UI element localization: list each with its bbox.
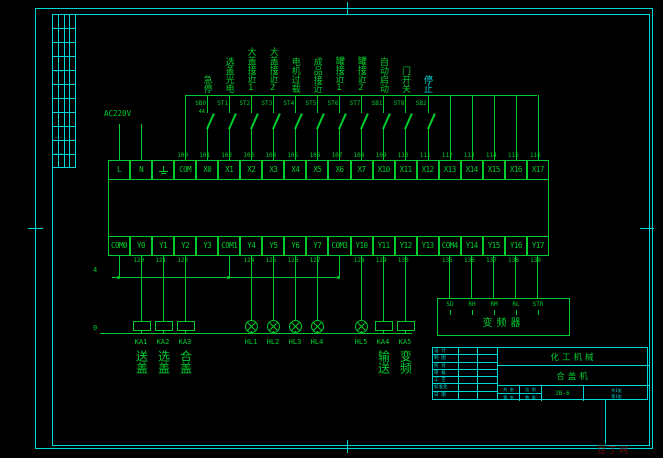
title-block-row: 审 核 <box>433 370 497 377</box>
junction-dot <box>337 276 340 279</box>
vfd-terminal: SD <box>440 302 460 308</box>
wire <box>450 95 451 113</box>
relay-ka1: KA1 送盖 <box>130 256 152 406</box>
title-block-row: 工 艺 <box>433 377 497 384</box>
contact-symbol <box>405 113 413 129</box>
wire <box>339 95 340 113</box>
title-block-row: 日 期 <box>433 392 497 399</box>
device-caption: 变频 <box>399 350 412 374</box>
input-function-label: 自动启动 <box>378 57 388 93</box>
wire <box>163 256 164 321</box>
frame-divider <box>605 400 606 444</box>
title-block-cell <box>459 370 478 376</box>
input-column: 大盖接近2 ST3 104 <box>262 22 284 160</box>
wire <box>538 95 539 113</box>
wire-number: 106 <box>309 153 320 159</box>
footer-text-block: 共1张 第1张 <box>584 386 649 401</box>
terminal: X10 <box>373 160 395 180</box>
device-caption: 合盖 <box>179 350 192 374</box>
wire <box>273 95 274 113</box>
switch-label: ST6 <box>328 101 339 107</box>
vfd-terminal-tick <box>516 310 517 315</box>
relay-coil-icon <box>155 321 173 331</box>
terminal-label: Y14 <box>466 242 478 250</box>
title-block-row-label: 校 对 <box>433 363 459 369</box>
lamp-hl3: HL3 <box>284 256 306 406</box>
device-id: KA5 <box>394 338 416 346</box>
wire <box>339 256 340 277</box>
wire <box>185 113 186 129</box>
relay-ka2: KA2 选盖 <box>152 256 174 406</box>
wire <box>141 256 142 321</box>
wire <box>295 95 296 113</box>
wire <box>119 256 120 277</box>
title-block-cell <box>478 384 497 390</box>
terminal <box>152 160 174 180</box>
wire <box>472 113 473 129</box>
input-function-label: 大盖接近1 <box>246 47 256 93</box>
wire-number: 139 <box>530 257 541 264</box>
terminal: X6 <box>328 160 350 180</box>
switch-label: ST3 <box>261 101 272 107</box>
zero-bus <box>100 333 412 334</box>
terminal: L <box>108 160 130 180</box>
switch-label: ST1 <box>217 101 228 107</box>
terminal: Y0 120 <box>130 236 152 256</box>
input-column: 选盖光电 ST1 102 <box>218 22 240 160</box>
contact-symbol <box>360 113 368 129</box>
wire-number: 104 <box>265 153 276 159</box>
terminal: X13 <box>439 160 461 180</box>
drawing-name: 合盖机 <box>498 366 649 386</box>
footer-line: 第1张 <box>584 394 649 400</box>
document-number: 2B-6 <box>542 386 584 401</box>
terminal-label: X13 <box>444 166 456 174</box>
wire <box>472 95 473 113</box>
title-block-row-label: 工 艺 <box>433 377 459 383</box>
input-function-label: 成品接近 <box>312 57 322 93</box>
title-block-cell <box>478 363 497 369</box>
contact-symbol <box>338 113 346 129</box>
input-column: 成品接近 ST5 106 <box>306 22 328 160</box>
wire-number: 103 <box>243 153 254 159</box>
terminal-label: COM0 <box>111 242 127 250</box>
wire-l <box>119 124 120 160</box>
wire <box>538 113 539 129</box>
title-block-row: 校 对 <box>433 363 497 370</box>
terminal-label: X2 <box>247 166 255 174</box>
title-block-row: 制 图 <box>433 355 497 362</box>
wire <box>229 95 230 113</box>
vfd-terminal: RM <box>484 302 504 308</box>
sheet-count-label: 共 张 <box>498 386 519 394</box>
input-function-label: 大盖接近2 <box>268 47 278 93</box>
strip-text-mark: — — <box>55 135 62 140</box>
center-mark-right <box>640 228 654 229</box>
wire <box>494 95 495 113</box>
device-id: HL1 <box>240 338 262 346</box>
terminal: Y11 129 <box>373 236 395 256</box>
qty-label: 数 量 <box>520 394 541 401</box>
wire <box>493 256 494 298</box>
device-id: HL4 <box>306 338 328 346</box>
relay-ka5: KA5 变频 <box>394 256 416 406</box>
terminal-label: Y15 <box>488 242 500 250</box>
input-column: 急停 SB0 4A 101 <box>196 22 218 160</box>
vfd-terminal-tick <box>538 310 539 315</box>
terminal-label: Y10 <box>356 242 368 250</box>
relay-coil-icon <box>177 321 195 331</box>
terminal: X16 <box>505 160 527 180</box>
terminal: Y3 <box>196 236 218 256</box>
sheet-count-label: 第 张 <box>498 394 519 401</box>
switch-label: ST4 <box>283 101 294 107</box>
terminal: COM1 <box>218 236 240 256</box>
center-mark-left <box>28 228 43 229</box>
terminal-label: COM3 <box>331 242 347 250</box>
terminal: Y14 136 <box>461 236 483 256</box>
title-block-cell <box>459 392 478 399</box>
input-column: 116 <box>527 22 549 160</box>
device-caption: 输送 <box>377 350 390 374</box>
title-block-cell <box>459 384 478 390</box>
input-column: 停止 SB2 111 <box>417 22 439 160</box>
terminal: Y15 137 <box>483 236 505 256</box>
junction-dot <box>117 276 120 279</box>
switch-label: ST5 <box>305 101 316 107</box>
title-block-row-label: 标准化 <box>433 384 459 390</box>
wire <box>361 95 362 113</box>
contact-symbol <box>427 113 435 129</box>
title-block-cell <box>478 355 497 361</box>
terminal-label: X4 <box>291 166 299 174</box>
terminal: X15 <box>483 160 505 180</box>
lamp-hl2: HL2 <box>262 256 284 406</box>
ac-supply-label: AC220V <box>104 110 131 117</box>
terminal-label: X14 <box>466 166 478 174</box>
wire-number: 137 <box>486 257 497 264</box>
wire <box>207 95 208 113</box>
device-id: HL5 <box>350 338 372 346</box>
terminal: N <box>130 160 152 180</box>
terminal: X4 <box>284 160 306 180</box>
input-function-label: 罐接近2 <box>356 56 366 93</box>
switch-label: ST2 <box>239 101 250 107</box>
terminal: Y4 124 <box>240 236 262 256</box>
relay-coil-icon <box>375 321 393 331</box>
title-block-footer: 共 张 第 张 比 例 数 量 2B-6 共1张 第1张 <box>498 386 649 401</box>
title-block-cell <box>478 377 497 383</box>
terminal-label: Y11 <box>378 242 390 250</box>
terminal: Y13 <box>417 236 439 256</box>
input-column: 大盖接近1 ST2 103 <box>240 22 262 160</box>
title-block-cell <box>459 355 478 361</box>
wire-number: 109 <box>376 153 387 159</box>
input-function-label: 急停 <box>202 75 212 93</box>
strip-text-mark: — — <box>55 69 62 74</box>
contact-symbol <box>383 113 391 129</box>
title-block-cell <box>478 392 497 399</box>
strip-divider <box>58 15 59 167</box>
plc-input-terminal-row: L N COM X0 X1 X2 X3 <box>108 160 550 180</box>
terminal-label: X17 <box>532 166 544 174</box>
input-function-label: 电机过载 <box>290 57 300 93</box>
terminal-label: X15 <box>488 166 500 174</box>
wire <box>251 256 252 320</box>
terminal-label: X5 <box>313 166 321 174</box>
input-function-label: 门开关 <box>400 66 410 93</box>
title-block-row: 设 计 <box>433 348 497 355</box>
title-block-row-label: 审 核 <box>433 370 459 376</box>
input-column: 113 <box>461 22 483 160</box>
scale-label: 比 例 <box>520 386 541 394</box>
terminal-label: X7 <box>358 166 366 174</box>
terminal: Y10 128 <box>351 236 373 256</box>
center-mark-top <box>347 2 348 14</box>
wire <box>405 95 406 113</box>
terminal: Y17 139 <box>527 236 549 256</box>
terminal-label: Y4 <box>247 242 255 250</box>
terminal-label: X0 <box>203 166 211 174</box>
wire <box>450 113 451 129</box>
wire <box>405 256 406 321</box>
wire-number: 135 <box>442 257 453 264</box>
common-bus-number: 4 <box>93 267 97 274</box>
terminal: COM3 <box>328 236 350 256</box>
wire <box>317 95 318 113</box>
switch-label: ST8 <box>394 101 405 107</box>
wire <box>251 95 252 113</box>
input-column: 电机过载 ST4 105 <box>284 22 306 160</box>
terminal-label: X12 <box>422 166 434 174</box>
terminal-label: X6 <box>335 166 343 174</box>
wire-number: 136 <box>464 257 475 264</box>
project-name: 化工机械 <box>498 348 649 366</box>
wire <box>229 256 230 277</box>
contact-symbol <box>228 113 236 129</box>
input-column: 门开关 ST8 110 <box>394 22 416 160</box>
vfd-terminal-tick <box>450 310 451 315</box>
terminal: X0 <box>196 160 218 180</box>
input-column: 114 <box>483 22 505 160</box>
terminal-label: COM4 <box>442 242 458 250</box>
title-block-row-label: 制 图 <box>433 355 459 361</box>
relay-ka4: KA4 输送 <box>372 256 394 406</box>
terminal: X11 <box>395 160 417 180</box>
wire <box>516 95 517 113</box>
terminal-label: L <box>117 166 121 174</box>
input-column: 115 <box>505 22 527 160</box>
wire <box>185 95 186 113</box>
terminal-label: COM <box>179 166 191 174</box>
input-column: 112 <box>439 22 461 160</box>
terminal: X2 <box>240 160 262 180</box>
wire <box>317 256 318 320</box>
wire <box>361 256 362 320</box>
input-column: 100 <box>174 22 196 160</box>
terminal: X17 <box>527 160 549 180</box>
vfd-terminal-tick <box>472 310 473 315</box>
device-id: HL2 <box>262 338 284 346</box>
vfd-terminal: STR <box>528 302 548 308</box>
contact-symbol <box>316 113 324 129</box>
title-block-cell <box>478 370 497 376</box>
switch-label: ST7 <box>350 101 361 107</box>
vfd-box: SD RH RM RL STR 变频器 <box>437 298 570 336</box>
switch-label: SB0 <box>195 101 206 107</box>
lamp-hl5: HL5 <box>350 256 372 406</box>
vfd-terminal: RL <box>506 302 526 308</box>
wire <box>537 256 538 298</box>
wire-number: 110 <box>398 153 409 159</box>
input-switch-columns: 100 急停 SB0 4A 101 选盖光电 ST1 102 大盖接 <box>174 22 552 160</box>
relay-coil-icon <box>133 321 151 331</box>
device-id: KA3 <box>174 338 196 346</box>
input-function-label: 罐接近1 <box>334 56 344 93</box>
title-block-cell <box>459 377 478 383</box>
terminal-label: Y1 <box>159 242 167 250</box>
center-mark-bottom <box>347 440 348 453</box>
device-caption: 选盖 <box>157 350 170 374</box>
wire <box>449 256 450 298</box>
title-block-signature-table: 设 计 制 图 校 对 审 核 工 艺 <box>433 348 498 399</box>
wire-n <box>141 124 142 160</box>
lamp-hl1: HL1 <box>240 256 262 406</box>
wire-number: 112 <box>442 153 453 159</box>
terminal: X14 <box>461 160 483 180</box>
terminal-label: Y16 <box>510 242 522 250</box>
terminal-label: X3 <box>269 166 277 174</box>
zero-bus-number: 0 <box>93 325 97 332</box>
switch-label: SB1 <box>372 101 383 107</box>
scale-qty-cells: 比 例 数 量 <box>520 386 542 401</box>
terminal: Y7 127 <box>306 236 328 256</box>
wire <box>273 256 274 320</box>
vfd-title: 变频器 <box>438 318 569 329</box>
sheet-count-cells: 共 张 第 张 <box>498 386 520 401</box>
terminal-label: Y7 <box>313 242 321 250</box>
earth-ground-icon <box>163 166 164 171</box>
input-column: 罐接近1 ST6 107 <box>328 22 350 160</box>
wire <box>383 95 384 113</box>
terminal-label: X11 <box>400 166 412 174</box>
terminal-label: X1 <box>225 166 233 174</box>
wire <box>428 95 429 113</box>
terminal: COM0 <box>108 236 130 256</box>
wire <box>185 256 186 321</box>
terminal: COM4 135 <box>439 236 461 256</box>
wire <box>494 113 495 129</box>
terminal-label: Y6 <box>291 242 299 250</box>
switch-rating: 4A <box>198 109 205 115</box>
terminal-label: Y13 <box>422 242 434 250</box>
wire-number: 108 <box>354 153 365 159</box>
strip-text-mark: — — <box>55 151 62 156</box>
device-id: HL3 <box>284 338 306 346</box>
wire-number: 113 <box>464 153 475 159</box>
wire-number: 100 <box>177 153 188 159</box>
switch-label: SB2 <box>416 101 427 107</box>
terminal: Y12 130 <box>395 236 417 256</box>
wire-number: 102 <box>221 153 232 159</box>
title-block-right: 化工机械 合盖机 共 张 第 张 比 例 数 量 2B-6 共1张 第1张 <box>498 348 649 399</box>
input-function-label: 停止 <box>422 75 432 93</box>
wire-number: 115 <box>508 153 519 159</box>
terminal: X3 <box>262 160 284 180</box>
device-id: KA4 <box>372 338 394 346</box>
strip-divider <box>69 15 70 167</box>
wire-number: 101 <box>199 153 210 159</box>
schematic-canvas: — — — — — — AC220V 100 急停 SB0 <box>0 0 663 458</box>
wire-number: 114 <box>486 153 497 159</box>
relay-ka3: KA3 合盖 <box>174 256 196 406</box>
wire-number: 116 <box>530 153 541 159</box>
wire <box>516 113 517 129</box>
wire <box>515 256 516 298</box>
terminal: Y6 126 <box>284 236 306 256</box>
title-block-cell <box>478 348 497 354</box>
title-block-cell <box>459 348 478 354</box>
contact-symbol <box>250 113 258 129</box>
terminal: X1 <box>218 160 240 180</box>
wire <box>295 256 296 320</box>
vfd-terminal: RH <box>462 302 482 308</box>
terminal-label: N <box>139 166 143 174</box>
wire-number: 111 <box>420 153 431 159</box>
terminal-label: X10 <box>378 166 390 174</box>
contact-symbol <box>206 113 214 129</box>
device-id: KA1 <box>130 338 152 346</box>
terminal-label: X16 <box>510 166 522 174</box>
frame-side-strip: — — — — — — <box>52 14 76 168</box>
terminal: X5 <box>306 160 328 180</box>
wire-number: 105 <box>287 153 298 159</box>
terminal-label: Y17 <box>532 242 544 250</box>
terminal-label: Y3 <box>203 242 211 250</box>
terminal-label: Y2 <box>181 242 189 250</box>
terminal: X7 <box>351 160 373 180</box>
title-block-row-label: 设 计 <box>433 348 459 354</box>
relay-coil-icon <box>397 321 415 331</box>
wire <box>471 256 472 298</box>
terminal-label: Y5 <box>269 242 277 250</box>
input-column: 罐接近2 ST7 108 <box>350 22 372 160</box>
wire-number: 138 <box>508 257 519 264</box>
contact-symbol <box>272 113 280 129</box>
title-block: 设 计 制 图 校 对 审 核 工 艺 <box>432 347 648 400</box>
input-column: 自动启动 SB1 109 <box>372 22 394 160</box>
terminal: Y1 121 <box>152 236 174 256</box>
lamp-hl4: HL4 <box>306 256 328 406</box>
title-block-row-label: 日 期 <box>433 392 459 399</box>
terminal-label: Y12 <box>400 242 412 250</box>
title-block-row: 标准化 <box>433 384 497 391</box>
contact-symbol <box>294 113 302 129</box>
terminal: Y5 125 <box>262 236 284 256</box>
watermark: 豆丁网 <box>597 446 630 456</box>
terminal-label: Y0 <box>137 242 145 250</box>
input-function-label: 选盖光电 <box>224 57 234 93</box>
terminal: COM <box>174 160 196 180</box>
device-id: KA2 <box>152 338 174 346</box>
plc-output-terminal-row: COM0 Y0 120 Y1 121 Y2 122 Y3 COM1 Y4 124 <box>108 236 550 256</box>
terminal: Y16 138 <box>505 236 527 256</box>
junction-dot <box>227 276 230 279</box>
terminal: Y2 122 <box>174 236 196 256</box>
title-block-cell <box>459 363 478 369</box>
wire <box>383 256 384 321</box>
strip-divider <box>64 15 65 167</box>
